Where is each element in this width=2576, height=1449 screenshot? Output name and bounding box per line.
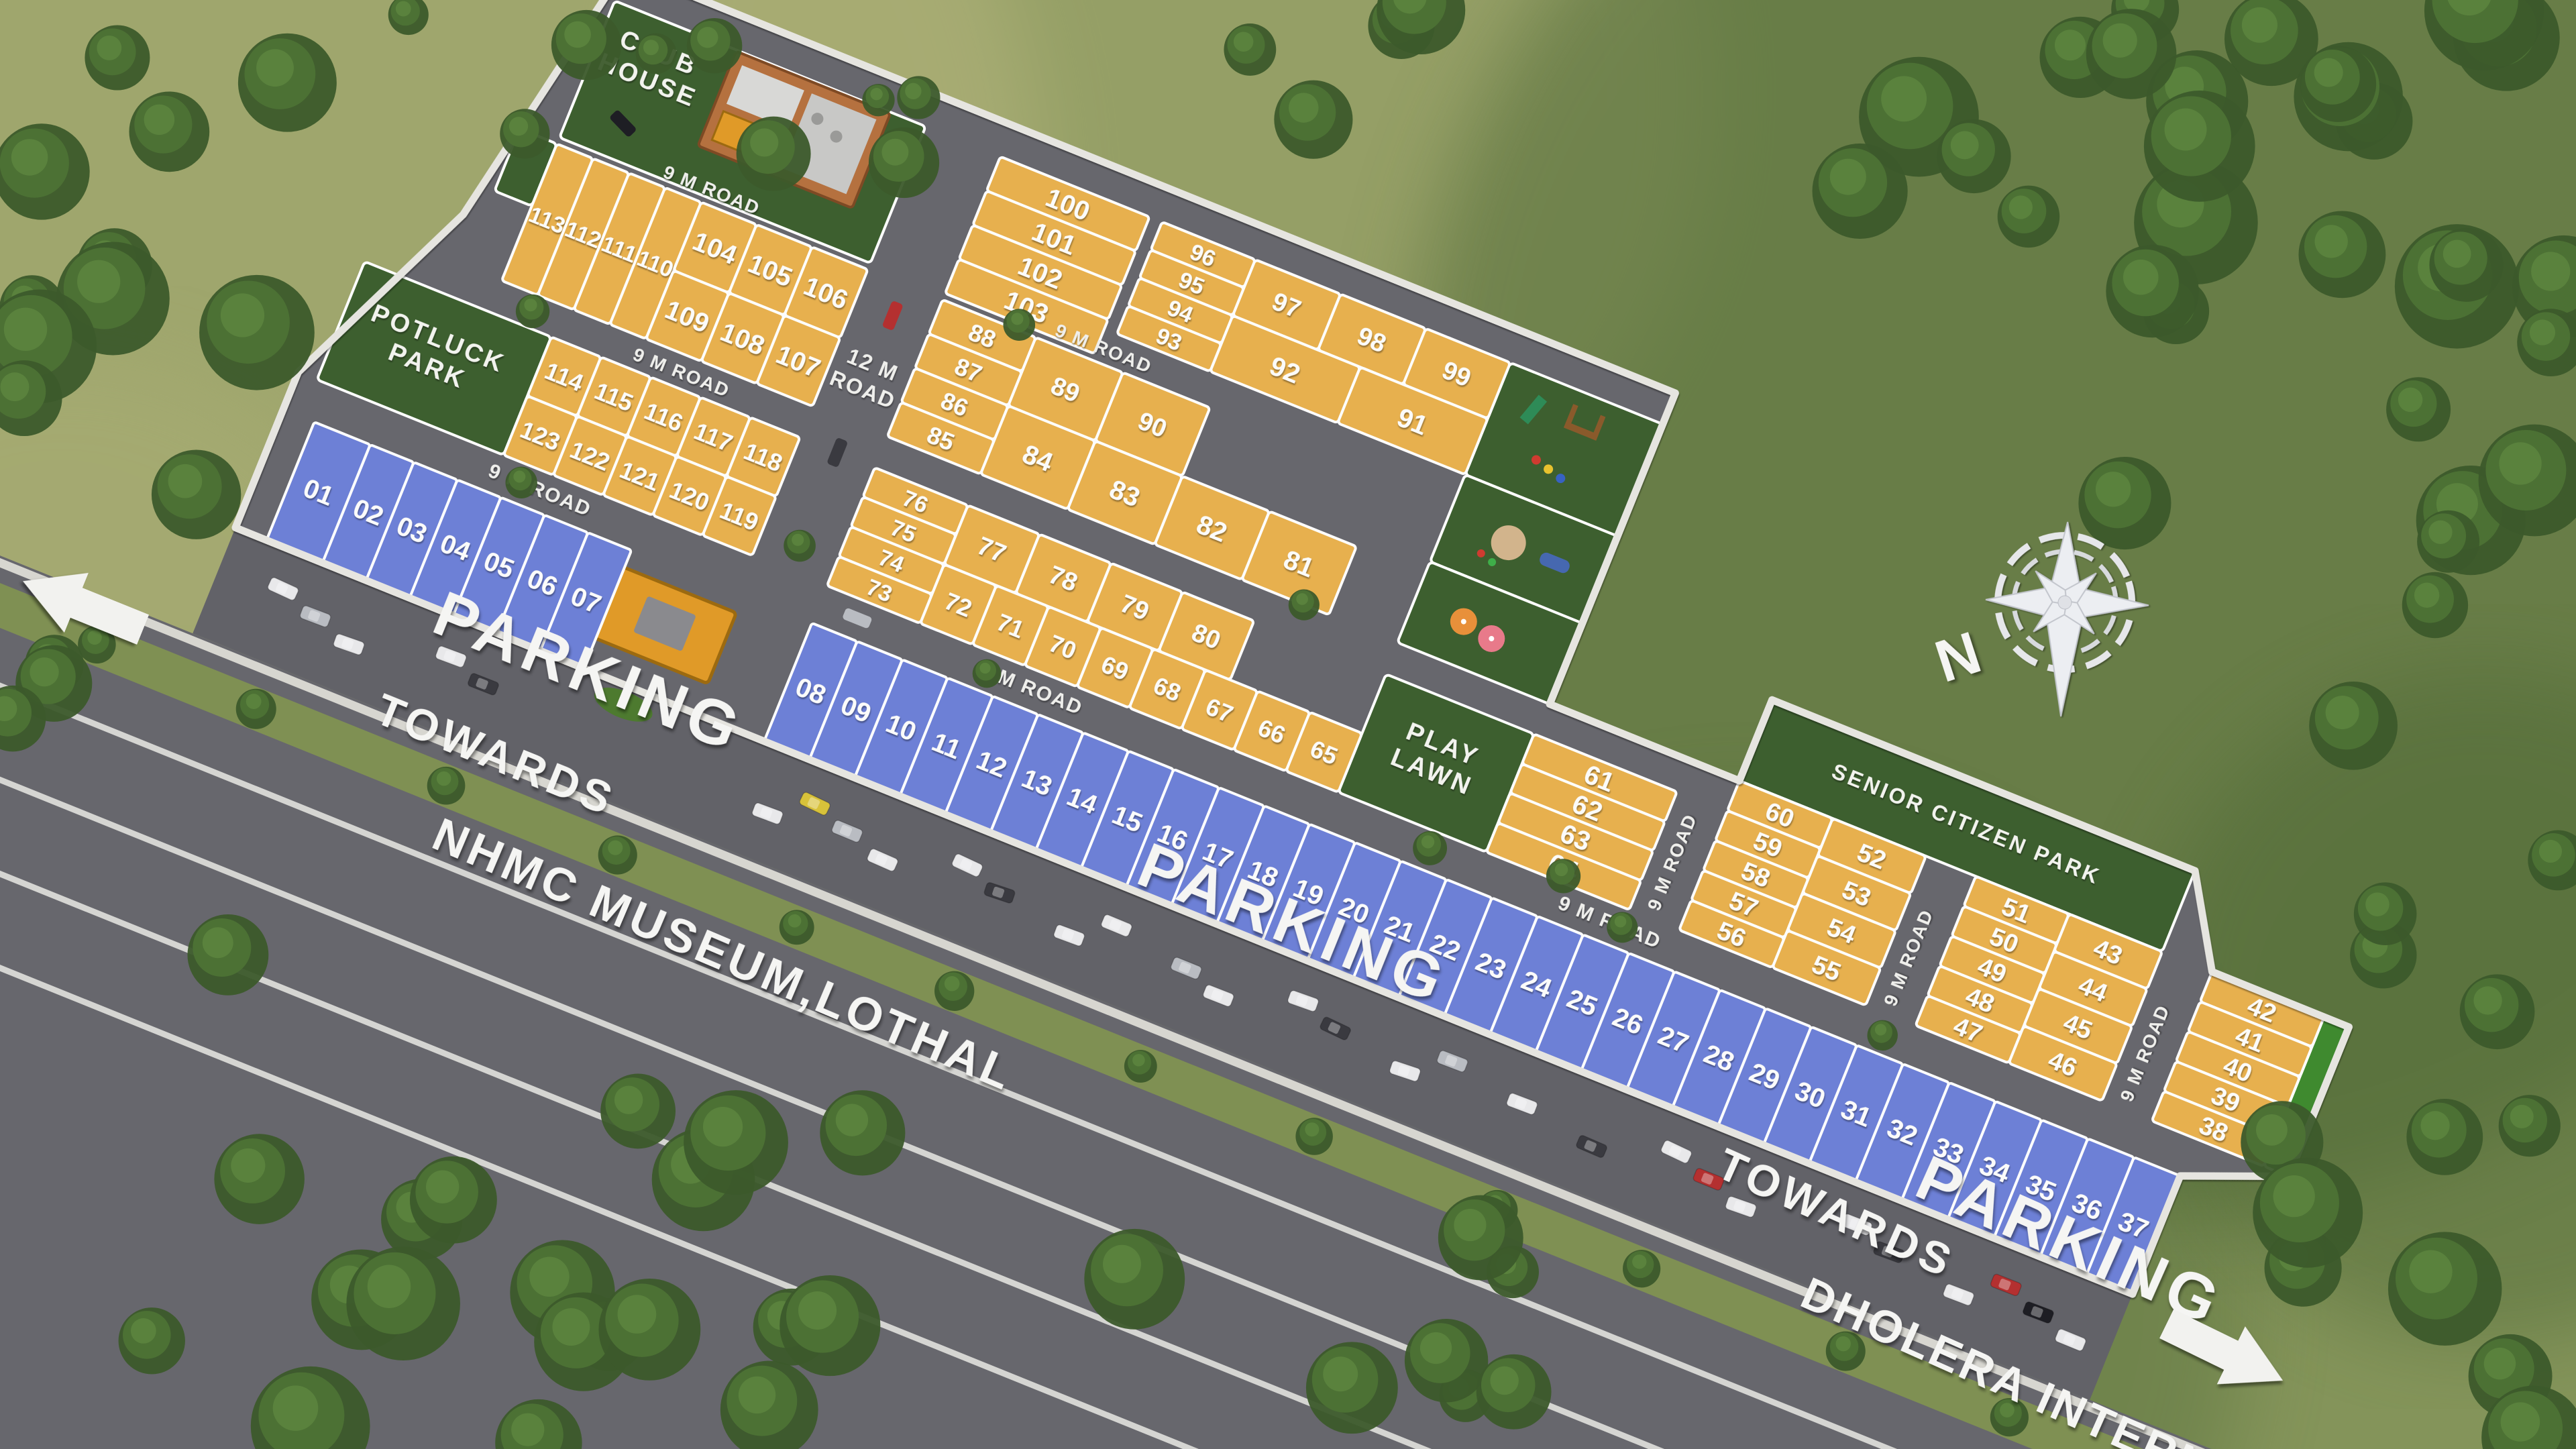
tree-icon — [2388, 1232, 2502, 1346]
tree-icon — [897, 76, 940, 119]
tree-icon — [684, 1090, 788, 1195]
tree-icon — [551, 10, 621, 80]
tree-icon — [152, 450, 241, 539]
tree-icon — [1084, 1229, 1185, 1330]
tree-icon — [2402, 572, 2468, 638]
tree-icon — [199, 275, 315, 390]
tree-icon — [2309, 682, 2398, 770]
tree-icon — [2300, 46, 2377, 122]
tree-icon — [119, 1307, 185, 1374]
tree-icon — [687, 18, 742, 73]
tree-icon — [1224, 23, 1276, 76]
tree-icon — [2429, 228, 2503, 302]
tree-icon — [85, 25, 150, 90]
tree-icon — [2499, 1095, 2561, 1157]
tree-icon — [346, 1246, 460, 1360]
tree-icon — [780, 1275, 880, 1376]
tree-icon — [2354, 882, 2417, 945]
tree-icon — [1998, 186, 2060, 248]
tree-icon — [2106, 245, 2198, 337]
tree-icon — [1477, 1354, 1552, 1430]
tree-icon — [2386, 377, 2451, 441]
tree-icon — [2406, 1099, 2483, 1175]
tree-icon — [1937, 119, 2010, 193]
tree-icon — [187, 914, 268, 996]
tree-icon — [410, 1157, 497, 1244]
tree-icon — [1438, 1195, 1523, 1281]
tree-icon — [2460, 974, 2535, 1049]
tree-icon — [1813, 144, 1908, 239]
tree-icon — [238, 34, 337, 132]
tree-icon — [2078, 457, 2171, 549]
tree-icon — [1306, 1342, 1398, 1434]
tree-icon — [2144, 91, 2255, 202]
tree-icon — [129, 91, 209, 172]
tree-icon — [1405, 1319, 1488, 1402]
tree-icon — [1274, 80, 1352, 159]
site-plan: CLUBHOUSEPOTLUCKPARKPLAYLAWNSENIOR CITIZ… — [0, 0, 2576, 1449]
tree-icon — [500, 109, 549, 158]
tree-icon — [820, 1090, 905, 1175]
tree-icon — [737, 117, 811, 191]
tree-icon — [600, 1074, 676, 1149]
tree-icon — [2086, 9, 2177, 99]
tree-icon — [2417, 511, 2479, 573]
tree-icon — [869, 127, 939, 198]
tree-icon — [2298, 211, 2385, 298]
tree-icon — [2253, 1158, 2363, 1268]
tree-icon — [598, 1279, 700, 1381]
tree-icon — [636, 34, 677, 74]
tree-icon — [214, 1134, 305, 1224]
